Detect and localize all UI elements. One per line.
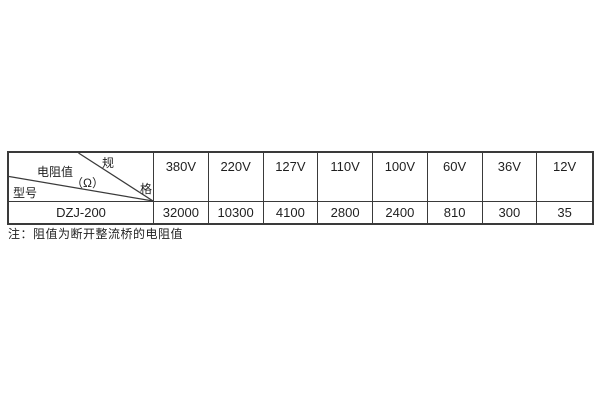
resistance-unit-label: （Ω） [71, 177, 104, 189]
column-header-127v: 127V [264, 153, 319, 202]
resistance-label: 电阻值 [37, 166, 73, 178]
column-header-60v: 60V [428, 153, 483, 202]
value-cell-100v: 2400 [373, 202, 428, 223]
column-header-12v: 12V [537, 153, 592, 202]
value-cell-380v: 32000 [154, 202, 209, 223]
model-label: 型号 [13, 187, 37, 199]
diagonal-header-cell: 规 格 电阻值 （Ω） 型号 [9, 153, 154, 202]
value-cell-220v: 10300 [209, 202, 264, 223]
value-cell-127v: 4100 [264, 202, 319, 223]
column-header-380v: 380V [154, 153, 209, 202]
value-cell-110v: 2800 [318, 202, 373, 223]
column-header-36v: 36V [483, 153, 538, 202]
spec-label-char-top: 规 [102, 157, 114, 169]
footnote: 注：阻值为断开整流桥的电阻值 [8, 227, 183, 242]
column-header-110v: 110V [318, 153, 373, 202]
value-cell-12v: 35 [537, 202, 592, 223]
value-cell-36v: 300 [483, 202, 538, 223]
value-cell-60v: 810 [428, 202, 483, 223]
resistance-spec-table: 规 格 电阻值 （Ω） 型号 380V 220V 127V 110V 100V … [7, 151, 594, 225]
model-cell: DZJ-200 [9, 202, 154, 223]
column-header-220v: 220V [209, 153, 264, 202]
spec-label-char-bottom: 格 [140, 183, 152, 195]
column-header-100v: 100V [373, 153, 428, 202]
